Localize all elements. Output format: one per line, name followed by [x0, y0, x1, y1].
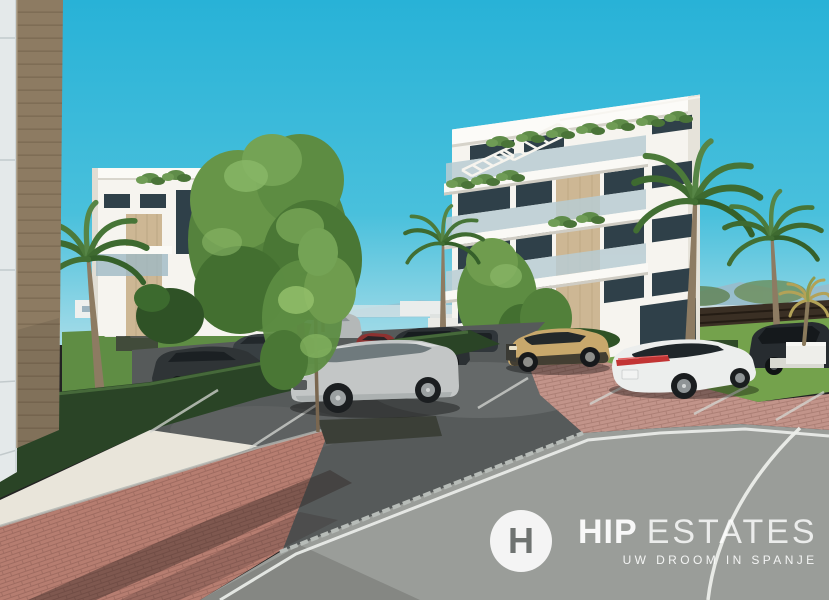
foreground-building-corner	[0, 0, 63, 482]
logo-badge: H	[490, 510, 552, 572]
watermark-text: HIPESTATES UW DROOM IN SPANJE	[578, 515, 818, 567]
watermark-logo: H HIPESTATES UW DROOM IN SPANJE	[490, 510, 818, 572]
facade-panel	[0, 0, 17, 482]
car-sedan-white	[609, 339, 759, 399]
brand-tagline: UW DROOM IN SPANJE	[578, 553, 818, 567]
render-viewport: H HIPESTATES UW DROOM IN SPANJE	[0, 0, 829, 600]
brand-name: HIPESTATES	[578, 515, 818, 549]
brand-name-light: ESTATES	[647, 513, 818, 551]
logo-monogram: H	[508, 523, 534, 559]
brand-name-bold: HIP	[578, 513, 638, 551]
